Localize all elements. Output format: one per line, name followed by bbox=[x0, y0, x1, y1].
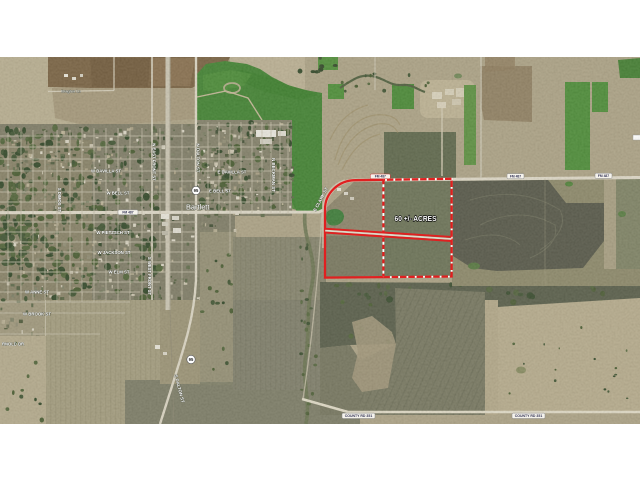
svg-text:W JACKSON ST: W JACKSON ST bbox=[98, 250, 131, 255]
svg-text:N DALTON ST: N DALTON ST bbox=[196, 143, 201, 172]
svg-text:E BELL ST: E BELL ST bbox=[209, 189, 231, 194]
svg-text:FM 487: FM 487 bbox=[510, 174, 521, 178]
svg-text:W ANNE ST: W ANNE ST bbox=[25, 290, 49, 295]
svg-text:Bartlett: Bartlett bbox=[186, 203, 209, 212]
svg-text:95: 95 bbox=[194, 188, 199, 193]
svg-text:FM 487: FM 487 bbox=[598, 174, 609, 178]
svg-text:FM 487: FM 487 bbox=[122, 211, 133, 215]
svg-text:S DIMOS ST: S DIMOS ST bbox=[57, 188, 62, 213]
svg-text:S WEST FRONT ST: S WEST FRONT ST bbox=[147, 257, 152, 296]
svg-text:60 +/- ACRES: 60 +/- ACRES bbox=[395, 214, 437, 223]
svg-text:W BROOK ST: W BROOK ST bbox=[23, 312, 51, 317]
svg-text:RNOLD DR: RNOLD DR bbox=[2, 342, 24, 347]
svg-text:N BECKMAN ST: N BECKMAN ST bbox=[271, 158, 276, 192]
svg-text:W ELM ST: W ELM ST bbox=[108, 270, 129, 275]
svg-text:Bragton Ln: Bragton Ln bbox=[61, 89, 81, 94]
svg-text:E DAVILLA ST: E DAVILLA ST bbox=[218, 170, 247, 175]
svg-text:N EAST FRONT ST: N EAST FRONT ST bbox=[152, 143, 157, 181]
svg-text:COUNTY RD 351: COUNTY RD 351 bbox=[515, 414, 543, 418]
svg-text:FM 487: FM 487 bbox=[375, 175, 386, 179]
svg-text:W PIETZSCH ST: W PIETZSCH ST bbox=[96, 230, 130, 235]
svg-text:W BELL ST: W BELL ST bbox=[106, 191, 129, 196]
svg-text:W DAVILLA ST: W DAVILLA ST bbox=[91, 169, 121, 174]
svg-text:95: 95 bbox=[189, 357, 194, 362]
svg-text:COUNTY RD 351: COUNTY RD 351 bbox=[345, 414, 373, 418]
